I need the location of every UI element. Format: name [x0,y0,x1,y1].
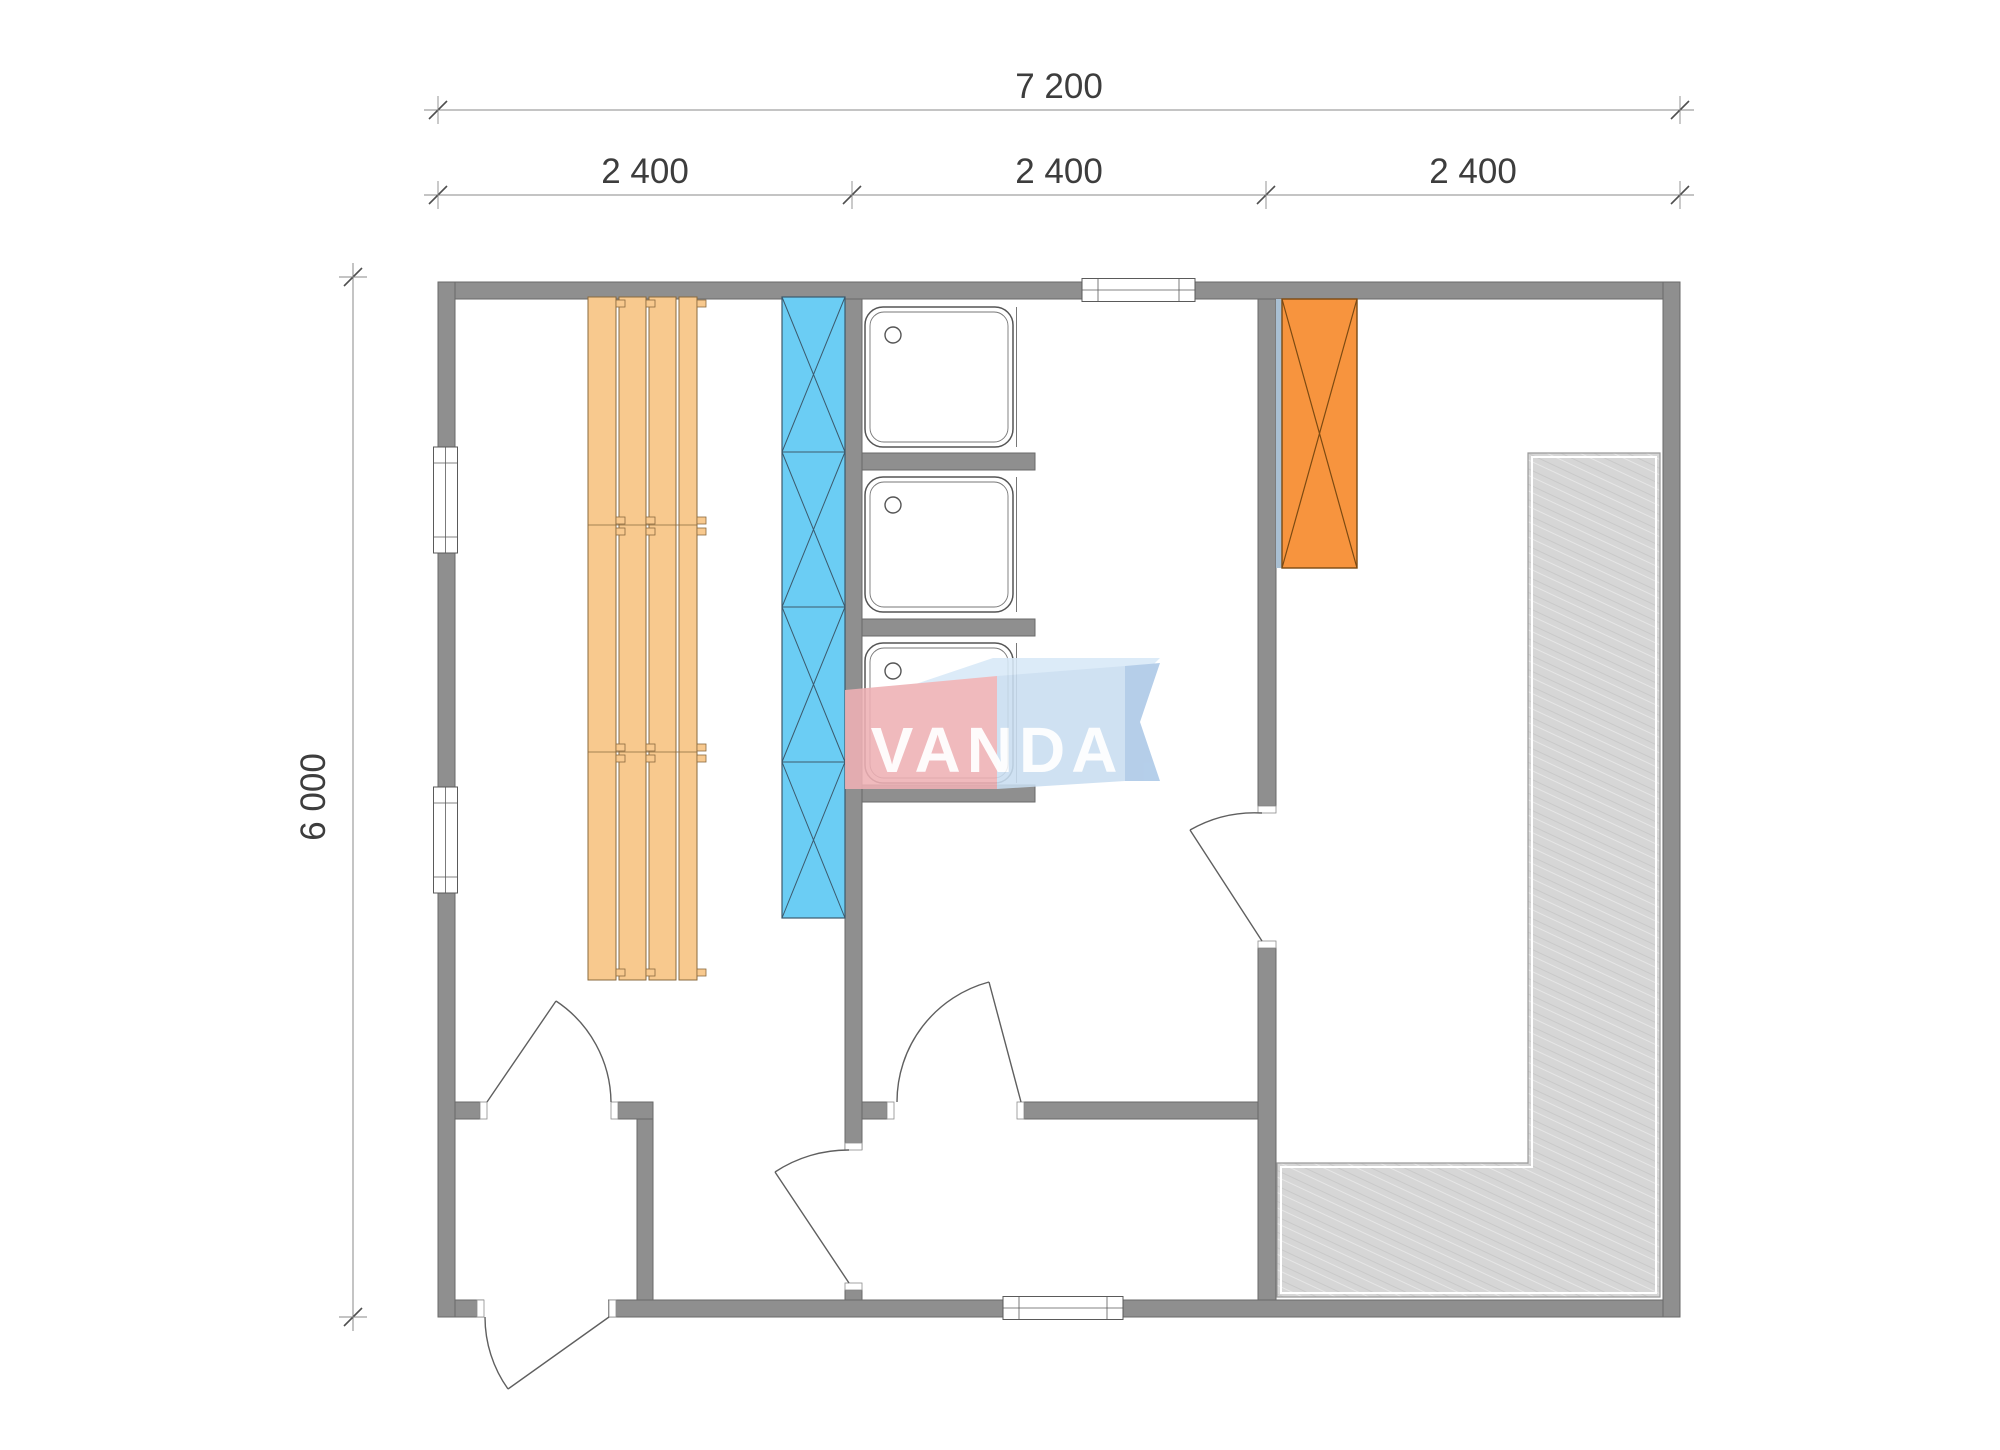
partition-shower-lounge-lower [1258,948,1276,1300]
hall-wall-left-piece [862,1102,887,1119]
dim-module-3: 2 400 [1429,152,1517,191]
door-shower-to-lounge [1190,813,1262,941]
window-left-wall-upper [434,447,458,553]
partition-shower-lounge-upper [1258,299,1276,806]
sauna-benches [588,297,706,980]
window-bottom-wall [1003,1297,1123,1320]
shower-tray-1 [865,307,1017,447]
porch-wall-right-piece [618,1102,653,1119]
shower-stub-2 [862,619,1035,636]
porch-wall-vertical [637,1119,653,1300]
window-top-wall [1082,279,1195,302]
dim-module-1: 2 400 [601,152,689,191]
dim-height: 6 000 [294,753,333,841]
door-porch-to-sauna [487,1001,611,1102]
porch-wall-left-piece [455,1102,480,1119]
dim-module-2: 2 400 [1015,152,1103,191]
floor-plan-drawing: 7 200 2 400 2 400 2 400 6 000 [0,0,2000,1450]
floor-plan-canvas: 7 200 2 400 2 400 2 400 6 000 [0,0,2000,1450]
door-entrance-exterior [485,1317,609,1389]
door-sauna-to-hall [775,1150,849,1283]
wall-right [1663,282,1680,1317]
partition-sauna-shower-stub [845,1290,862,1300]
deck-lounge-area [1277,453,1660,1297]
wall-top [438,282,1680,299]
blue-hatched-panel [782,297,845,918]
shower-stub-1 [862,453,1035,470]
vanda-logo-text: VANDA [871,714,1124,786]
shower-tray-2 [865,477,1017,612]
window-left-wall-lower [434,787,458,893]
stove [1276,299,1357,568]
door-hall-to-shower [897,982,1021,1102]
dim-total-width: 7 200 [1015,67,1103,106]
hall-wall-right-piece [1024,1102,1258,1119]
